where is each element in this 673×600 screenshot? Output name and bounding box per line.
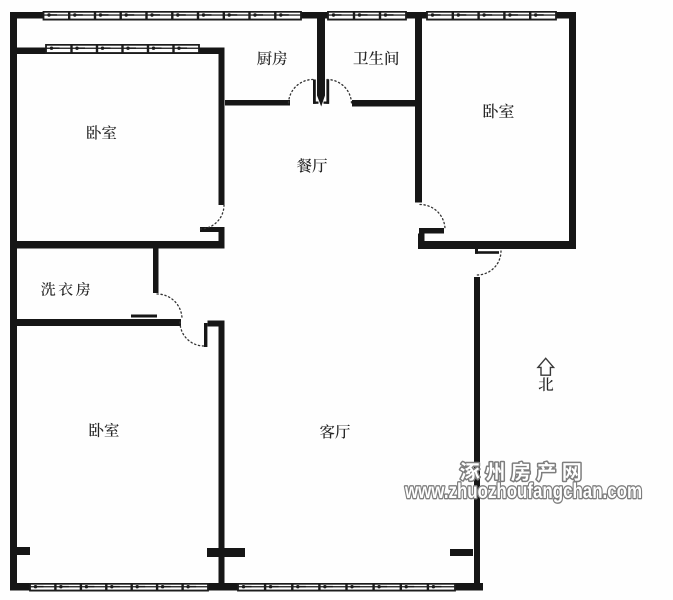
svg-text:www.zhuozhoufangchan.com: www.zhuozhoufangchan.com bbox=[404, 480, 642, 503]
